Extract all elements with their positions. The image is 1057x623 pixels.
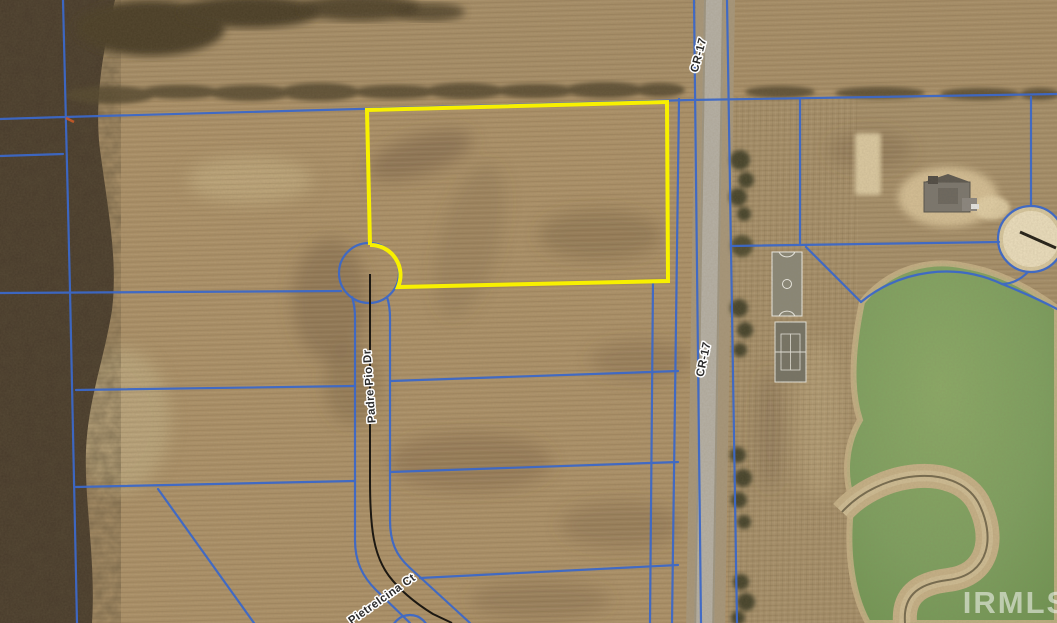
watermark-irmls: IRMLS — [963, 585, 1057, 620]
aerial-map: CR-17 CR-17 Padre Pio Dr Pietrelcina Ct … — [0, 0, 1057, 623]
